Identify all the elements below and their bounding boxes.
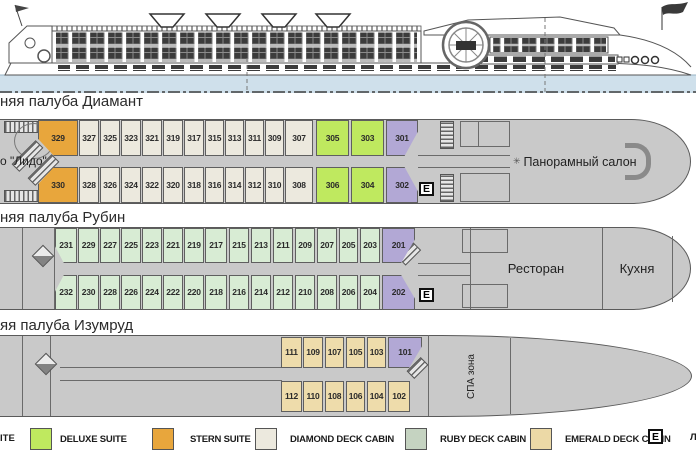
cabin-210[interactable]: 210 xyxy=(295,275,315,310)
cabin-227[interactable]: 227 xyxy=(100,228,120,263)
emerald-cabin-row-bottom: 112 110 108 106 104 102 xyxy=(0,381,696,412)
legend-partial-last-label: Л xyxy=(690,432,696,443)
cabin-229[interactable]: 229 xyxy=(78,228,99,263)
cabin-104[interactable]: 104 xyxy=(367,381,386,412)
cabin-308[interactable]: 308 xyxy=(285,167,313,203)
diamond-cabin-row-top: 329 327 325 323 321 319 317 315 313 311 … xyxy=(0,120,696,156)
corridor-wall xyxy=(418,263,470,264)
cabin-202[interactable]: 202 xyxy=(382,275,415,310)
cabin-319[interactable]: 319 xyxy=(163,120,183,156)
cabin-221[interactable]: 221 xyxy=(163,228,183,263)
legend-swatch-diamond-cabin xyxy=(255,428,277,450)
cabin-302[interactable]: 302 xyxy=(386,167,418,203)
cabin-218[interactable]: 218 xyxy=(205,275,227,310)
cabin-214[interactable]: 214 xyxy=(251,275,271,310)
cabin-206[interactable]: 206 xyxy=(339,275,358,310)
cabin-208[interactable]: 208 xyxy=(317,275,337,310)
deck-plan-page: няя палуба Диамант о "Лидо" E ✳ Панорамн… xyxy=(0,0,696,464)
cabin-212[interactable]: 212 xyxy=(273,275,293,310)
cabin-318[interactable]: 318 xyxy=(184,167,204,203)
spa-zone-label: СПА зона xyxy=(466,338,484,416)
legend-partial-first-label: ITE xyxy=(0,433,15,444)
cabin-231[interactable]: 231 xyxy=(55,228,77,263)
cabin-211[interactable]: 211 xyxy=(273,228,293,263)
cabin-309[interactable]: 309 xyxy=(265,120,284,156)
cabin-216[interactable]: 216 xyxy=(229,275,249,310)
cabin-310[interactable]: 310 xyxy=(265,167,284,203)
cabin-305[interactable]: 305 xyxy=(316,120,349,156)
elevator-badge: E xyxy=(419,288,434,302)
legend-swatch-stern-suite xyxy=(152,428,174,450)
restaurant-label: Ресторан xyxy=(470,261,602,276)
cabin-315[interactable]: 315 xyxy=(205,120,224,156)
cabin-220[interactable]: 220 xyxy=(184,275,204,310)
cabin-105[interactable]: 105 xyxy=(346,337,365,368)
cabin-223[interactable]: 223 xyxy=(142,228,162,263)
cabin-323[interactable]: 323 xyxy=(121,120,141,156)
cabin-102[interactable]: 102 xyxy=(388,381,410,412)
cabin-101[interactable]: 101 xyxy=(388,337,422,368)
legend-swatch-deluxe-suite xyxy=(30,428,52,450)
ship-side-view-illustration xyxy=(0,0,696,97)
lido-bar-label: о "Лидо" xyxy=(0,154,47,168)
cabin-232[interactable]: 232 xyxy=(55,275,77,310)
cabin-110[interactable]: 110 xyxy=(303,381,323,412)
cabin-226[interactable]: 226 xyxy=(121,275,141,310)
legend-label-ruby-cabin: RUBY DECK CABIN xyxy=(440,434,526,445)
elevator-badge: E xyxy=(419,182,434,196)
legend-swatch-ruby-cabin xyxy=(405,428,427,450)
cabin-329[interactable]: 329 xyxy=(38,120,78,156)
cabin-219[interactable]: 219 xyxy=(184,228,204,263)
cabin-204[interactable]: 204 xyxy=(360,275,380,310)
cabin-317[interactable]: 317 xyxy=(184,120,204,156)
legend-label-diamond-cabin: DIAMOND DECK CABIN xyxy=(290,434,394,445)
cabin-324[interactable]: 324 xyxy=(121,167,141,203)
cabin-207[interactable]: 207 xyxy=(317,228,337,263)
cabin-209[interactable]: 209 xyxy=(295,228,315,263)
cabin-304[interactable]: 304 xyxy=(351,167,384,203)
cabin-312[interactable]: 312 xyxy=(245,167,264,203)
ruby-cabin-row-bottom: 232 230 228 226 224 222 220 218 216 214 … xyxy=(0,275,696,310)
kitchen-label: Кухня xyxy=(602,261,672,276)
cabin-326[interactable]: 326 xyxy=(100,167,120,203)
cabin-320[interactable]: 320 xyxy=(163,167,183,203)
cabin-215[interactable]: 215 xyxy=(229,228,249,263)
cabin-228[interactable]: 228 xyxy=(100,275,120,310)
cabin-316[interactable]: 316 xyxy=(205,167,224,203)
deck-title-ruby: няя палуба Рубин xyxy=(0,209,125,226)
deck-title-emerald: яя палуба Изумруд xyxy=(0,317,133,334)
cabin-217[interactable]: 217 xyxy=(205,228,227,263)
cabin-203[interactable]: 203 xyxy=(360,228,380,263)
legend-swatch-emerald-cabin xyxy=(530,428,552,450)
cabin-112[interactable]: 112 xyxy=(281,381,302,412)
cabin-311[interactable]: 311 xyxy=(245,120,264,156)
cabin-109[interactable]: 109 xyxy=(303,337,323,368)
cabin-108[interactable]: 108 xyxy=(325,381,344,412)
cabin-321[interactable]: 321 xyxy=(142,120,162,156)
cabin-328[interactable]: 328 xyxy=(79,167,99,203)
panorama-salon-label: Панорамный салон xyxy=(505,155,655,169)
cabin-327[interactable]: 327 xyxy=(79,120,99,156)
cabin-103[interactable]: 103 xyxy=(367,337,386,368)
legend-label-deluxe-suite: DELUXE SUITE xyxy=(60,434,127,445)
deck-title-diamond: няя палуба Диамант xyxy=(0,93,143,110)
cabin-224[interactable]: 224 xyxy=(142,275,162,310)
legend-elevator-badge: E xyxy=(648,429,663,444)
cabin-301[interactable]: 301 xyxy=(386,120,418,156)
ruby-cabin-row-top: 231 229 227 225 223 221 219 217 215 213 … xyxy=(0,228,696,263)
cabin-213[interactable]: 213 xyxy=(251,228,271,263)
cabin-314[interactable]: 314 xyxy=(225,167,244,203)
cabin-303[interactable]: 303 xyxy=(351,120,384,156)
cabin-205[interactable]: 205 xyxy=(339,228,358,263)
cabin-230[interactable]: 230 xyxy=(78,275,99,310)
cabin-307[interactable]: 307 xyxy=(285,120,313,156)
cabin-330[interactable]: 330 xyxy=(38,167,78,203)
cabin-111[interactable]: 111 xyxy=(281,337,302,368)
cabin-306[interactable]: 306 xyxy=(316,167,349,203)
cabin-322[interactable]: 322 xyxy=(142,167,162,203)
cabin-201[interactable]: 201 xyxy=(382,228,415,263)
emerald-cabin-row-top: 111 109 107 105 103 101 xyxy=(0,337,696,368)
cabin-107[interactable]: 107 xyxy=(325,337,344,368)
cabin-106[interactable]: 106 xyxy=(346,381,365,412)
cabin-325[interactable]: 325 xyxy=(100,120,120,156)
cabin-225[interactable]: 225 xyxy=(121,228,141,263)
legend-label-stern-suite: STERN SUITE xyxy=(190,434,251,445)
diamond-cabin-row-bottom: 330 328 326 324 322 320 318 316 314 312 … xyxy=(0,167,696,203)
cabin-222[interactable]: 222 xyxy=(163,275,183,310)
cabin-313[interactable]: 313 xyxy=(225,120,244,156)
